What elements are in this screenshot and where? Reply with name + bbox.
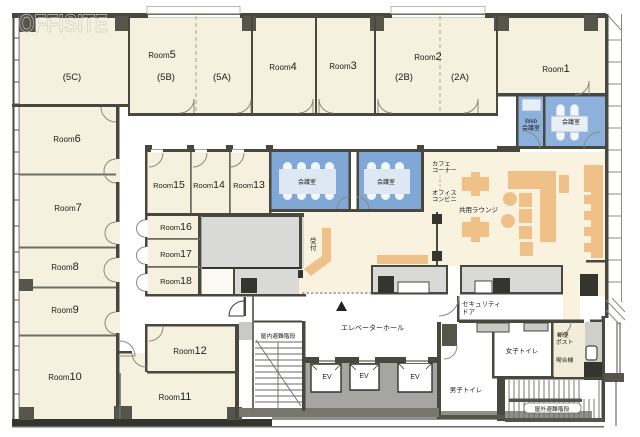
svg-text:Room10: Room10 [48, 371, 82, 383]
svg-text:屋内避難階段: 屋内避難階段 [261, 332, 296, 340]
svg-text:会議室: 会議室 [522, 124, 540, 132]
svg-text:コーナー: コーナー [432, 168, 457, 175]
svg-text:Room2: Room2 [414, 51, 441, 63]
svg-text:Room15: Room15 [153, 179, 185, 191]
svg-text:コンビニ: コンビニ [432, 196, 457, 204]
svg-text:EV: EV [322, 374, 332, 381]
svg-text:Room8: Room8 [51, 261, 78, 273]
svg-text:屋外避難階段: 屋外避難階段 [535, 405, 570, 413]
svg-text:Room3: Room3 [329, 60, 356, 72]
svg-text:Room6: Room6 [53, 133, 80, 145]
svg-text:Room17: Room17 [160, 248, 192, 260]
svg-text:ポスト: ポスト [556, 338, 573, 346]
svg-text:女子トイレ: 女子トイレ [506, 346, 539, 355]
svg-text:会議室: 会議室 [298, 178, 316, 186]
svg-text:Room16: Room16 [160, 221, 192, 233]
svg-text:OFFISITE: OFFISITE [19, 10, 108, 38]
svg-text:Room5: Room5 [148, 49, 175, 61]
svg-text:喫合機: 喫合機 [556, 356, 574, 364]
svg-text:エレベーターホール: エレベーターホール [341, 323, 404, 332]
svg-text:(5B): (5B) [157, 72, 175, 83]
svg-text:会議室: 会議室 [377, 178, 395, 186]
svg-text:セキュリティ: セキュリティ [462, 300, 501, 308]
svg-text:Room14: Room14 [193, 179, 225, 191]
svg-text:付: 付 [310, 243, 317, 252]
svg-text:会議室: 会議室 [562, 118, 580, 126]
svg-text:Room18: Room18 [160, 275, 192, 287]
svg-text:(2B): (2B) [395, 72, 413, 83]
svg-text:男子トイレ: 男子トイレ [450, 386, 483, 394]
svg-text:Room9: Room9 [51, 304, 78, 316]
svg-text:Room4: Room4 [269, 61, 296, 73]
svg-text:受: 受 [310, 236, 317, 245]
svg-text:ドア: ドア [462, 308, 476, 316]
svg-text:(5C): (5C) [63, 72, 81, 83]
svg-text:Room11: Room11 [159, 391, 192, 403]
svg-text:Room1: Room1 [542, 63, 569, 75]
svg-text:(5A): (5A) [213, 72, 231, 83]
svg-text:EV: EV [410, 374, 420, 381]
svg-text:共用ラウンジ: 共用ラウンジ [459, 205, 499, 214]
svg-text:Web: Web [525, 119, 538, 125]
svg-text:郵便: 郵便 [557, 331, 569, 339]
svg-text:(2A): (2A) [451, 72, 469, 83]
svg-text:Room7: Room7 [54, 202, 81, 214]
svg-text:Room12: Room12 [173, 345, 207, 357]
svg-text:Room13: Room13 [233, 179, 265, 191]
svg-text:EV: EV [359, 373, 369, 380]
